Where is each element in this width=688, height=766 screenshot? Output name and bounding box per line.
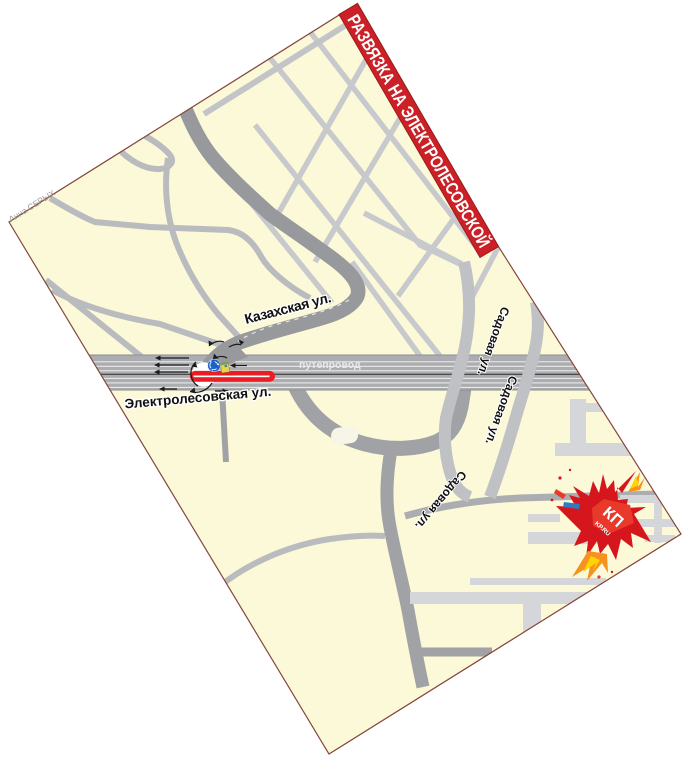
svg-text:путепровод: путепровод [299,359,361,371]
